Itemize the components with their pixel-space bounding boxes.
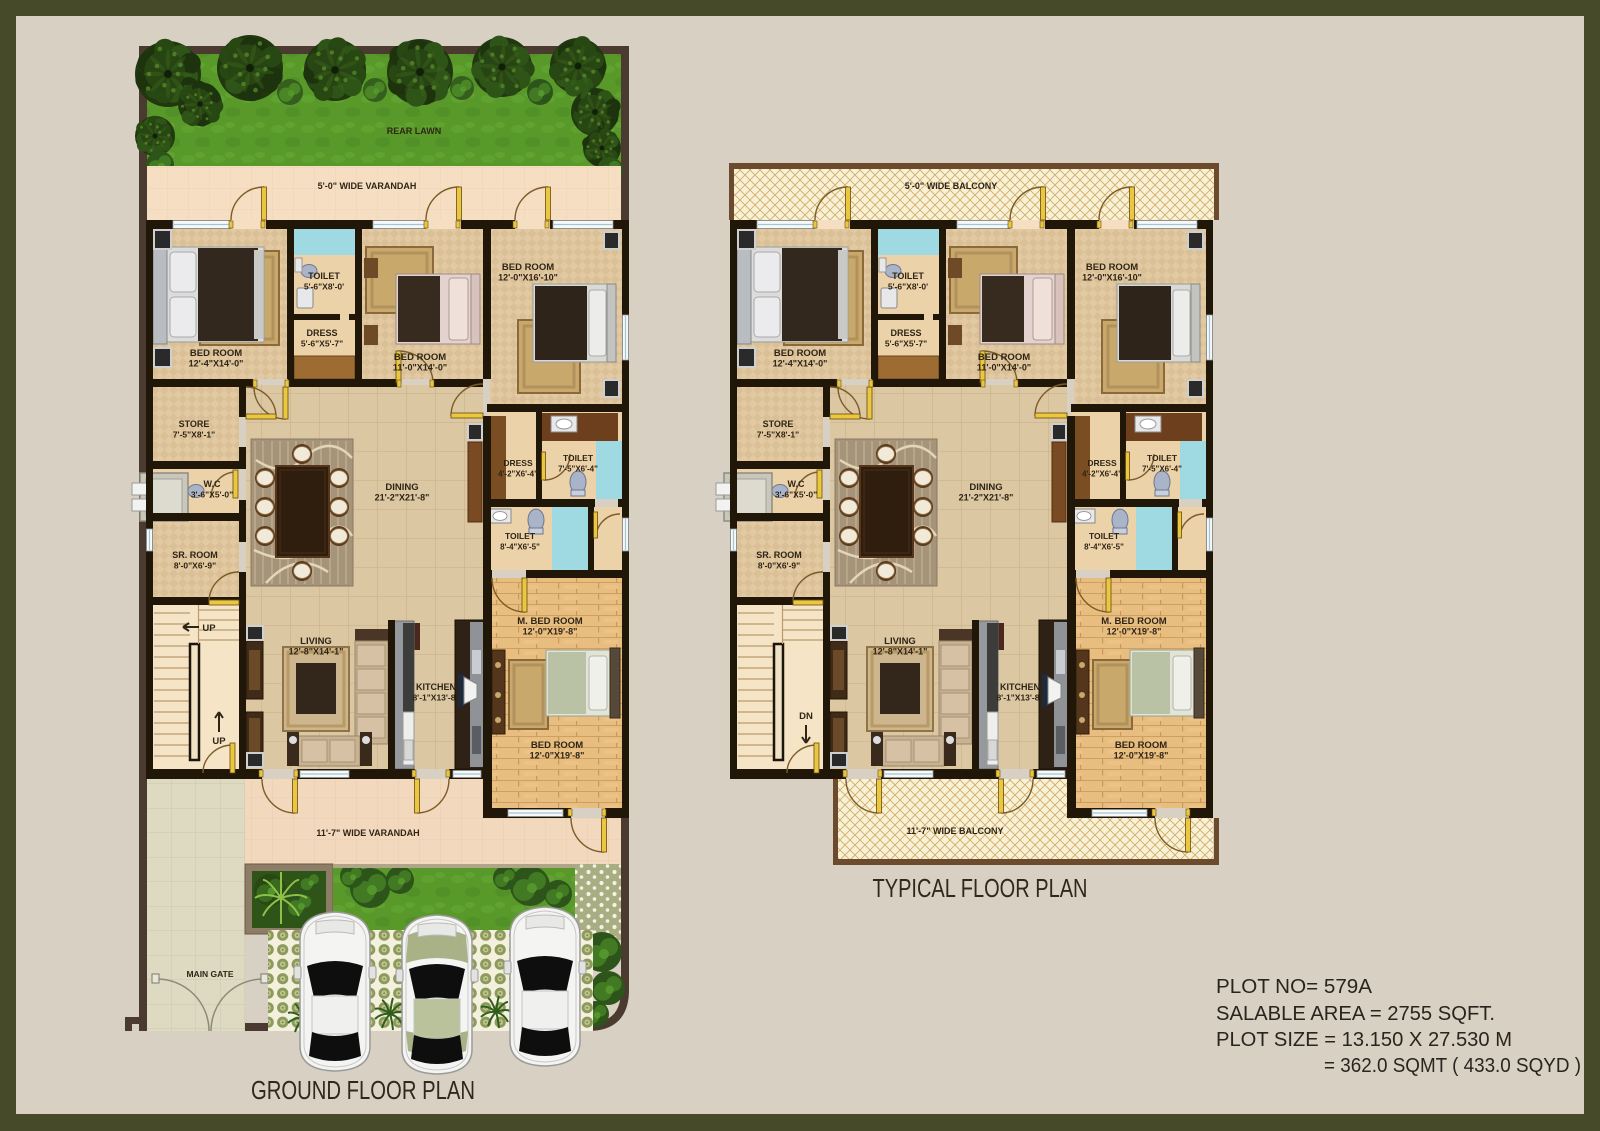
svg-text:SALABLE AREA = 2755 SQFT.: SALABLE AREA = 2755 SQFT. <box>1216 1003 1495 1025</box>
svg-text:11'-7" WIDE VARANDAH: 11'-7" WIDE VARANDAH <box>316 828 419 838</box>
svg-text:= 362.0 SQMT ( 433.0 SQYD ): = 362.0 SQMT ( 433.0 SQYD ) <box>1324 1055 1581 1077</box>
svg-text:GROUND FLOOR PLAN: GROUND FLOOR PLAN <box>251 1075 475 1105</box>
svg-text:5'-0" WIDE BALCONY: 5'-0" WIDE BALCONY <box>905 181 997 191</box>
svg-text:TYPICAL FLOOR PLAN: TYPICAL FLOOR PLAN <box>873 873 1088 903</box>
svg-text:DN: DN <box>799 711 813 722</box>
svg-text:PLOT NO= 579A: PLOT NO= 579A <box>1216 976 1373 998</box>
svg-text:PLOT SIZE = 13.150 X 27.530 M: PLOT SIZE = 13.150 X 27.530 M <box>1216 1029 1512 1051</box>
svg-text:MAIN GATE: MAIN GATE <box>186 969 233 979</box>
svg-text:11'-7" WIDE BALCONY: 11'-7" WIDE BALCONY <box>907 826 1004 836</box>
svg-text:REAR LAWN: REAR LAWN <box>387 126 442 136</box>
svg-text:5'-0" WIDE VARANDAH: 5'-0" WIDE VARANDAH <box>318 181 417 191</box>
svg-text:UP: UP <box>212 736 226 747</box>
svg-text:UP: UP <box>202 623 216 634</box>
